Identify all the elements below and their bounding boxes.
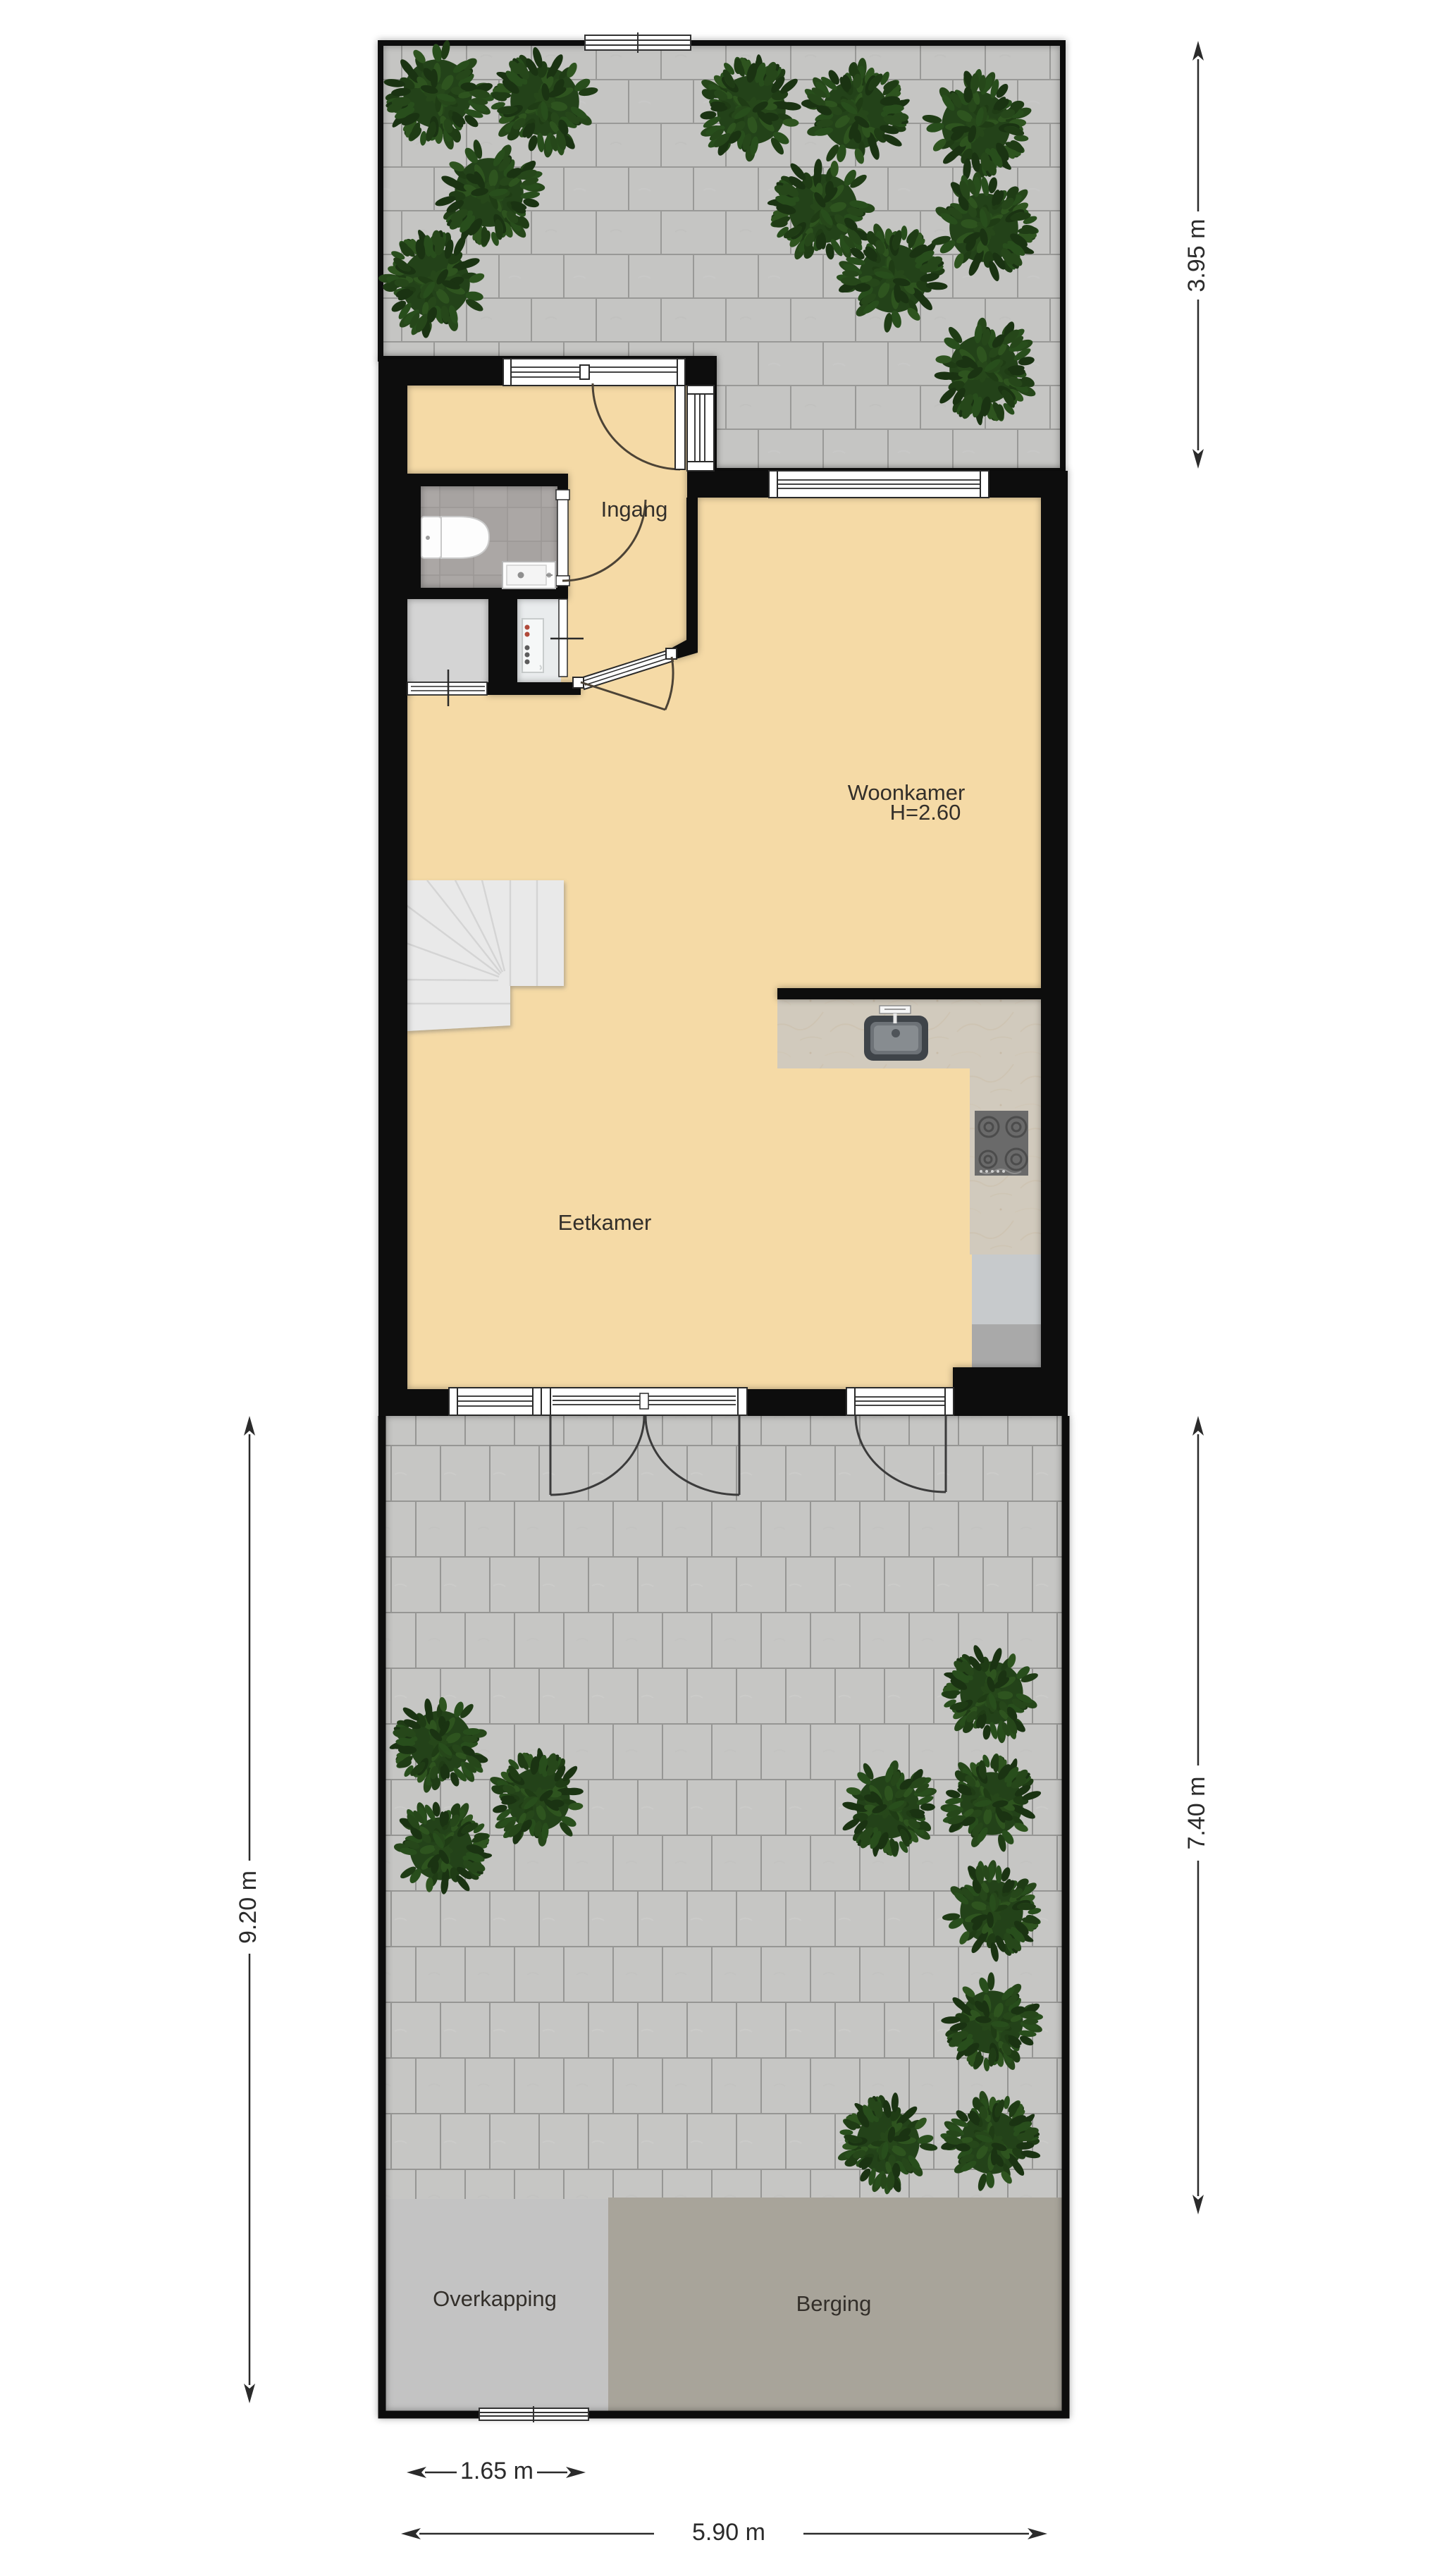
svg-text:H=2.60: H=2.60 [890, 800, 961, 825]
svg-text:Overkapping: Overkapping [433, 2286, 557, 2311]
svg-text:Eetkamer: Eetkamer [558, 1210, 652, 1235]
svg-text:Berging: Berging [796, 2291, 872, 2316]
svg-text:3.95 m: 3.95 m [1183, 219, 1210, 292]
svg-text:7.40 m: 7.40 m [1183, 1777, 1210, 1850]
svg-text:9.20 m: 9.20 m [235, 1871, 261, 1944]
svg-text:Ingang: Ingang [601, 497, 668, 522]
svg-text:5.90 m: 5.90 m [692, 2519, 765, 2546]
svg-text:1.65 m: 1.65 m [460, 2458, 534, 2484]
